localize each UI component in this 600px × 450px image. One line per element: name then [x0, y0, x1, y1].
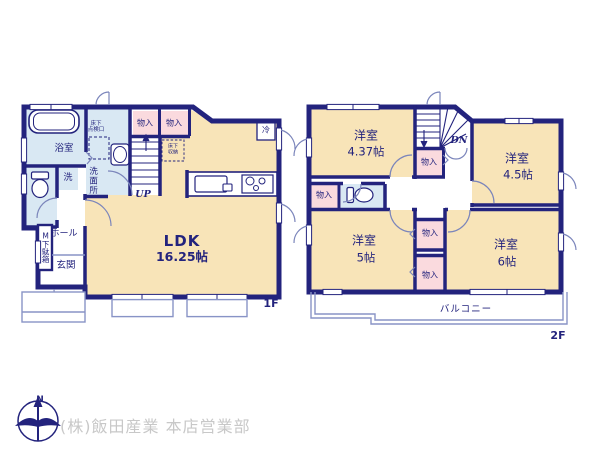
room-label-entrance: 玄関 — [56, 261, 75, 271]
room-label-se: 洋室 — [494, 238, 518, 251]
window-bath-left — [21, 138, 26, 162]
window-room-sw-left — [306, 225, 311, 245]
label-stairs-up: UP — [135, 190, 150, 200]
compass-north-label: N — [36, 396, 44, 406]
toilet1-bowl — [32, 180, 48, 198]
label-fridge: 冷 — [262, 127, 270, 136]
burner-3 — [254, 186, 259, 191]
floor2-label: 2F — [550, 330, 565, 342]
room-label-ne-area: 4.5帖 — [503, 169, 533, 182]
room-label-ldk-area: 16.25帖 — [156, 250, 208, 264]
room-label-closet-a: 物入 — [137, 120, 153, 129]
room-label-sw-area: 5帖 — [357, 252, 376, 265]
inspection-line2: 点検口 — [88, 127, 105, 133]
room-label-bath: 浴室 — [54, 144, 73, 154]
label-balcony: バルコニー — [440, 305, 492, 315]
shutter-box-1 — [112, 300, 173, 317]
room-label-closet-b: 物入 — [166, 120, 182, 129]
underfloor-line2: 収納 — [168, 150, 178, 156]
room-label-ne: 洋室 — [505, 152, 529, 165]
washbasin-bowl — [114, 147, 127, 163]
casement-arcs-2f-west — [294, 139, 307, 243]
window-ldk-east-2 — [276, 203, 281, 223]
room-label-washer: 洗 — [63, 174, 72, 184]
room-label-nw: 洋室 — [354, 129, 378, 142]
room-label-inspection: 床下 点検口 — [88, 121, 105, 133]
label-closet-mid-lower: 物入 — [422, 272, 438, 281]
floorplan: 浴室 床下 点検口 洗 洗面所 物入 物入 冷 床下 収納 UP LDK 16.… — [0, 0, 600, 450]
label-closet-stairs: 物入 — [421, 159, 437, 168]
window-room-sw-bottom — [323, 289, 342, 294]
label-stairs-dn: DN — [451, 136, 468, 146]
room-label-ldk: LDK — [164, 233, 201, 250]
label-closet-west: 物入 — [316, 192, 332, 201]
burner-1 — [246, 177, 254, 185]
window-room-nw-left — [306, 138, 311, 157]
window-room-ne-right — [558, 172, 563, 190]
room-label-washroom: 洗面所 — [87, 167, 96, 196]
window-entrance-left — [35, 241, 40, 263]
kitchen-sink — [195, 176, 227, 192]
room-label-se-area: 6帖 — [498, 256, 517, 269]
window-room-se-right — [558, 233, 563, 251]
room-label-hall: ホール — [50, 230, 77, 240]
label-underfloor-storage: 床下 収納 — [168, 145, 178, 156]
door-washroom-north — [96, 92, 109, 105]
floor1-label: 1F — [263, 298, 278, 310]
label-shoe-cabinet: M下駄箱 — [41, 231, 49, 263]
door-stairs-double — [445, 148, 467, 159]
room-label-nw-area: 4.37帖 — [347, 146, 384, 159]
window-ldk-east-1 — [276, 128, 281, 150]
toilet1-tank — [32, 172, 49, 179]
window-toilet1-left — [21, 174, 26, 194]
company-name: (株)飯田産業 本店営業部 — [60, 413, 251, 437]
entrance-porch — [22, 292, 85, 322]
bathtub-inner — [34, 113, 75, 130]
burner-2 — [259, 178, 265, 184]
shutter-box-2 — [187, 300, 247, 317]
door-stairs-north — [427, 92, 440, 105]
stairs-1f-treads — [131, 135, 159, 184]
casement-arcs-1f-east — [281, 130, 295, 222]
label-closet-mid-upper: 物入 — [422, 230, 438, 239]
kitchen-faucet — [223, 184, 232, 191]
casement-arcs-2f-east — [563, 173, 576, 250]
room-label-sw: 洋室 — [352, 234, 376, 247]
floorplan-drawing — [0, 0, 600, 450]
